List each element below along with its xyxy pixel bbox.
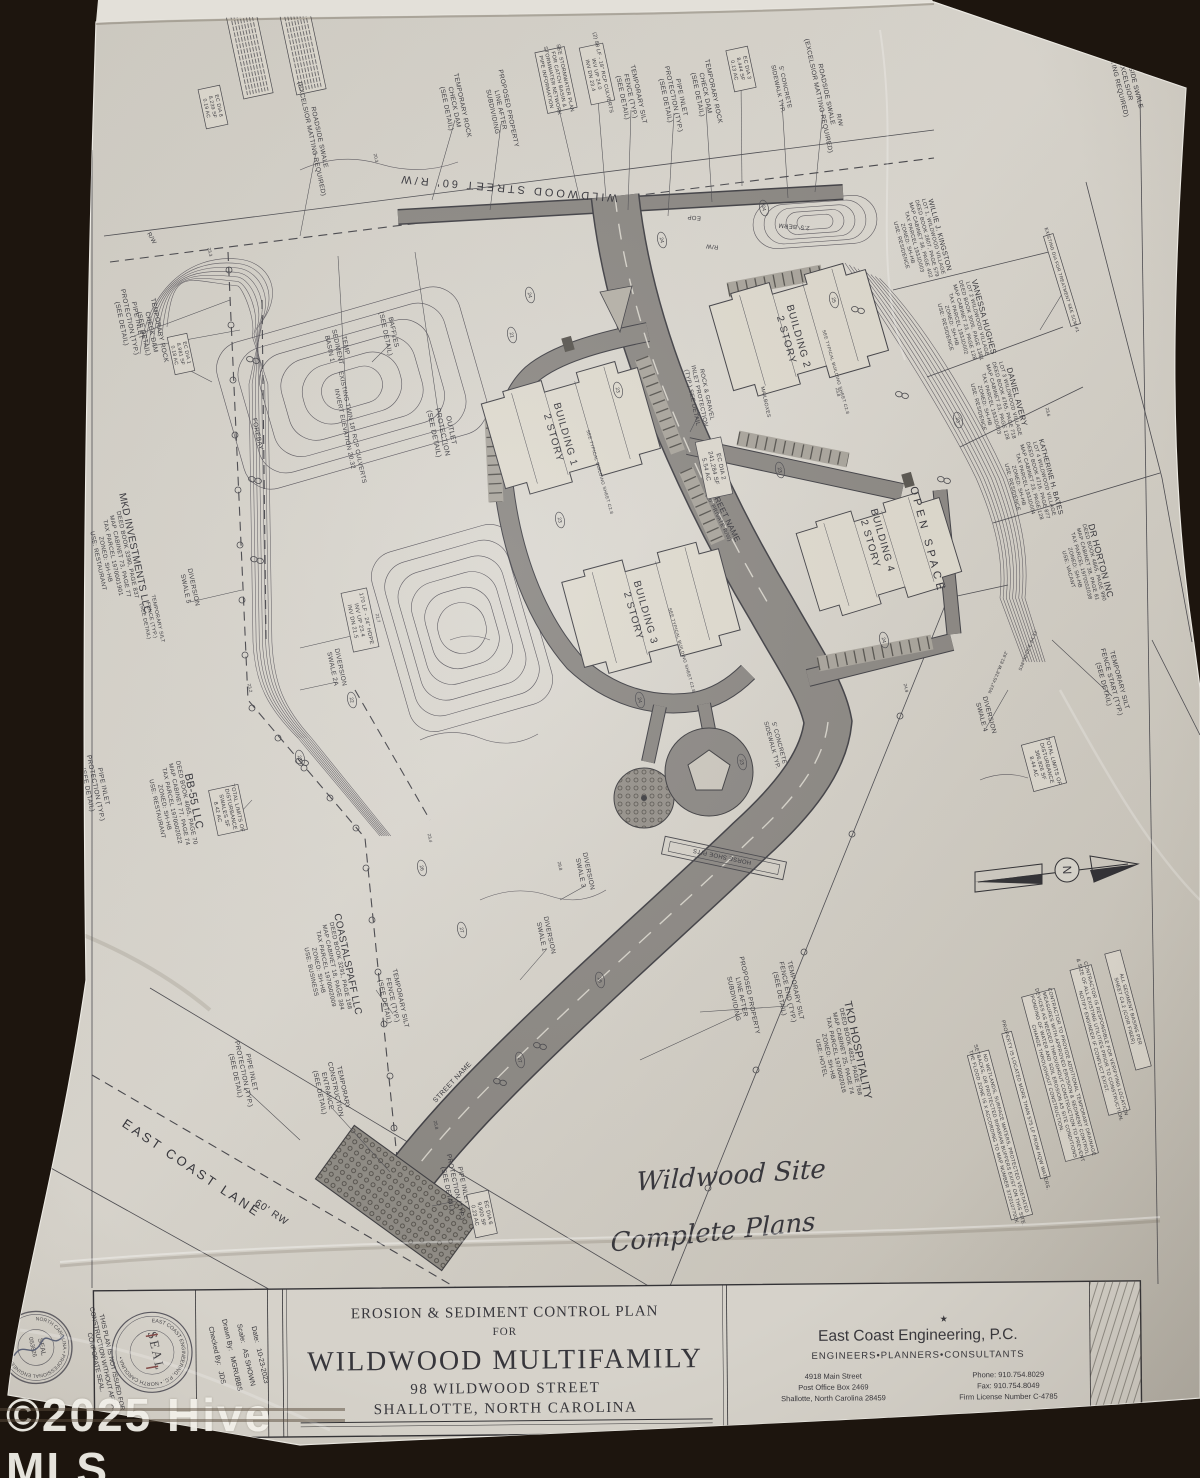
mls-watermark: ©2025 Hive MLS (6, 1388, 366, 1478)
photo-of-site-plan: N 0 40' 80' SCALE: 1" = 40' 242123232423… (0, 0, 1200, 1478)
watermark-slit-2 (0, 1419, 345, 1422)
watermark-slit-1 (0, 1408, 345, 1411)
paper-wrinkles (0, 0, 1200, 1478)
site-plan-drawing: N 0 40' 80' SCALE: 1" = 40' 242123232423… (0, 0, 1200, 1478)
